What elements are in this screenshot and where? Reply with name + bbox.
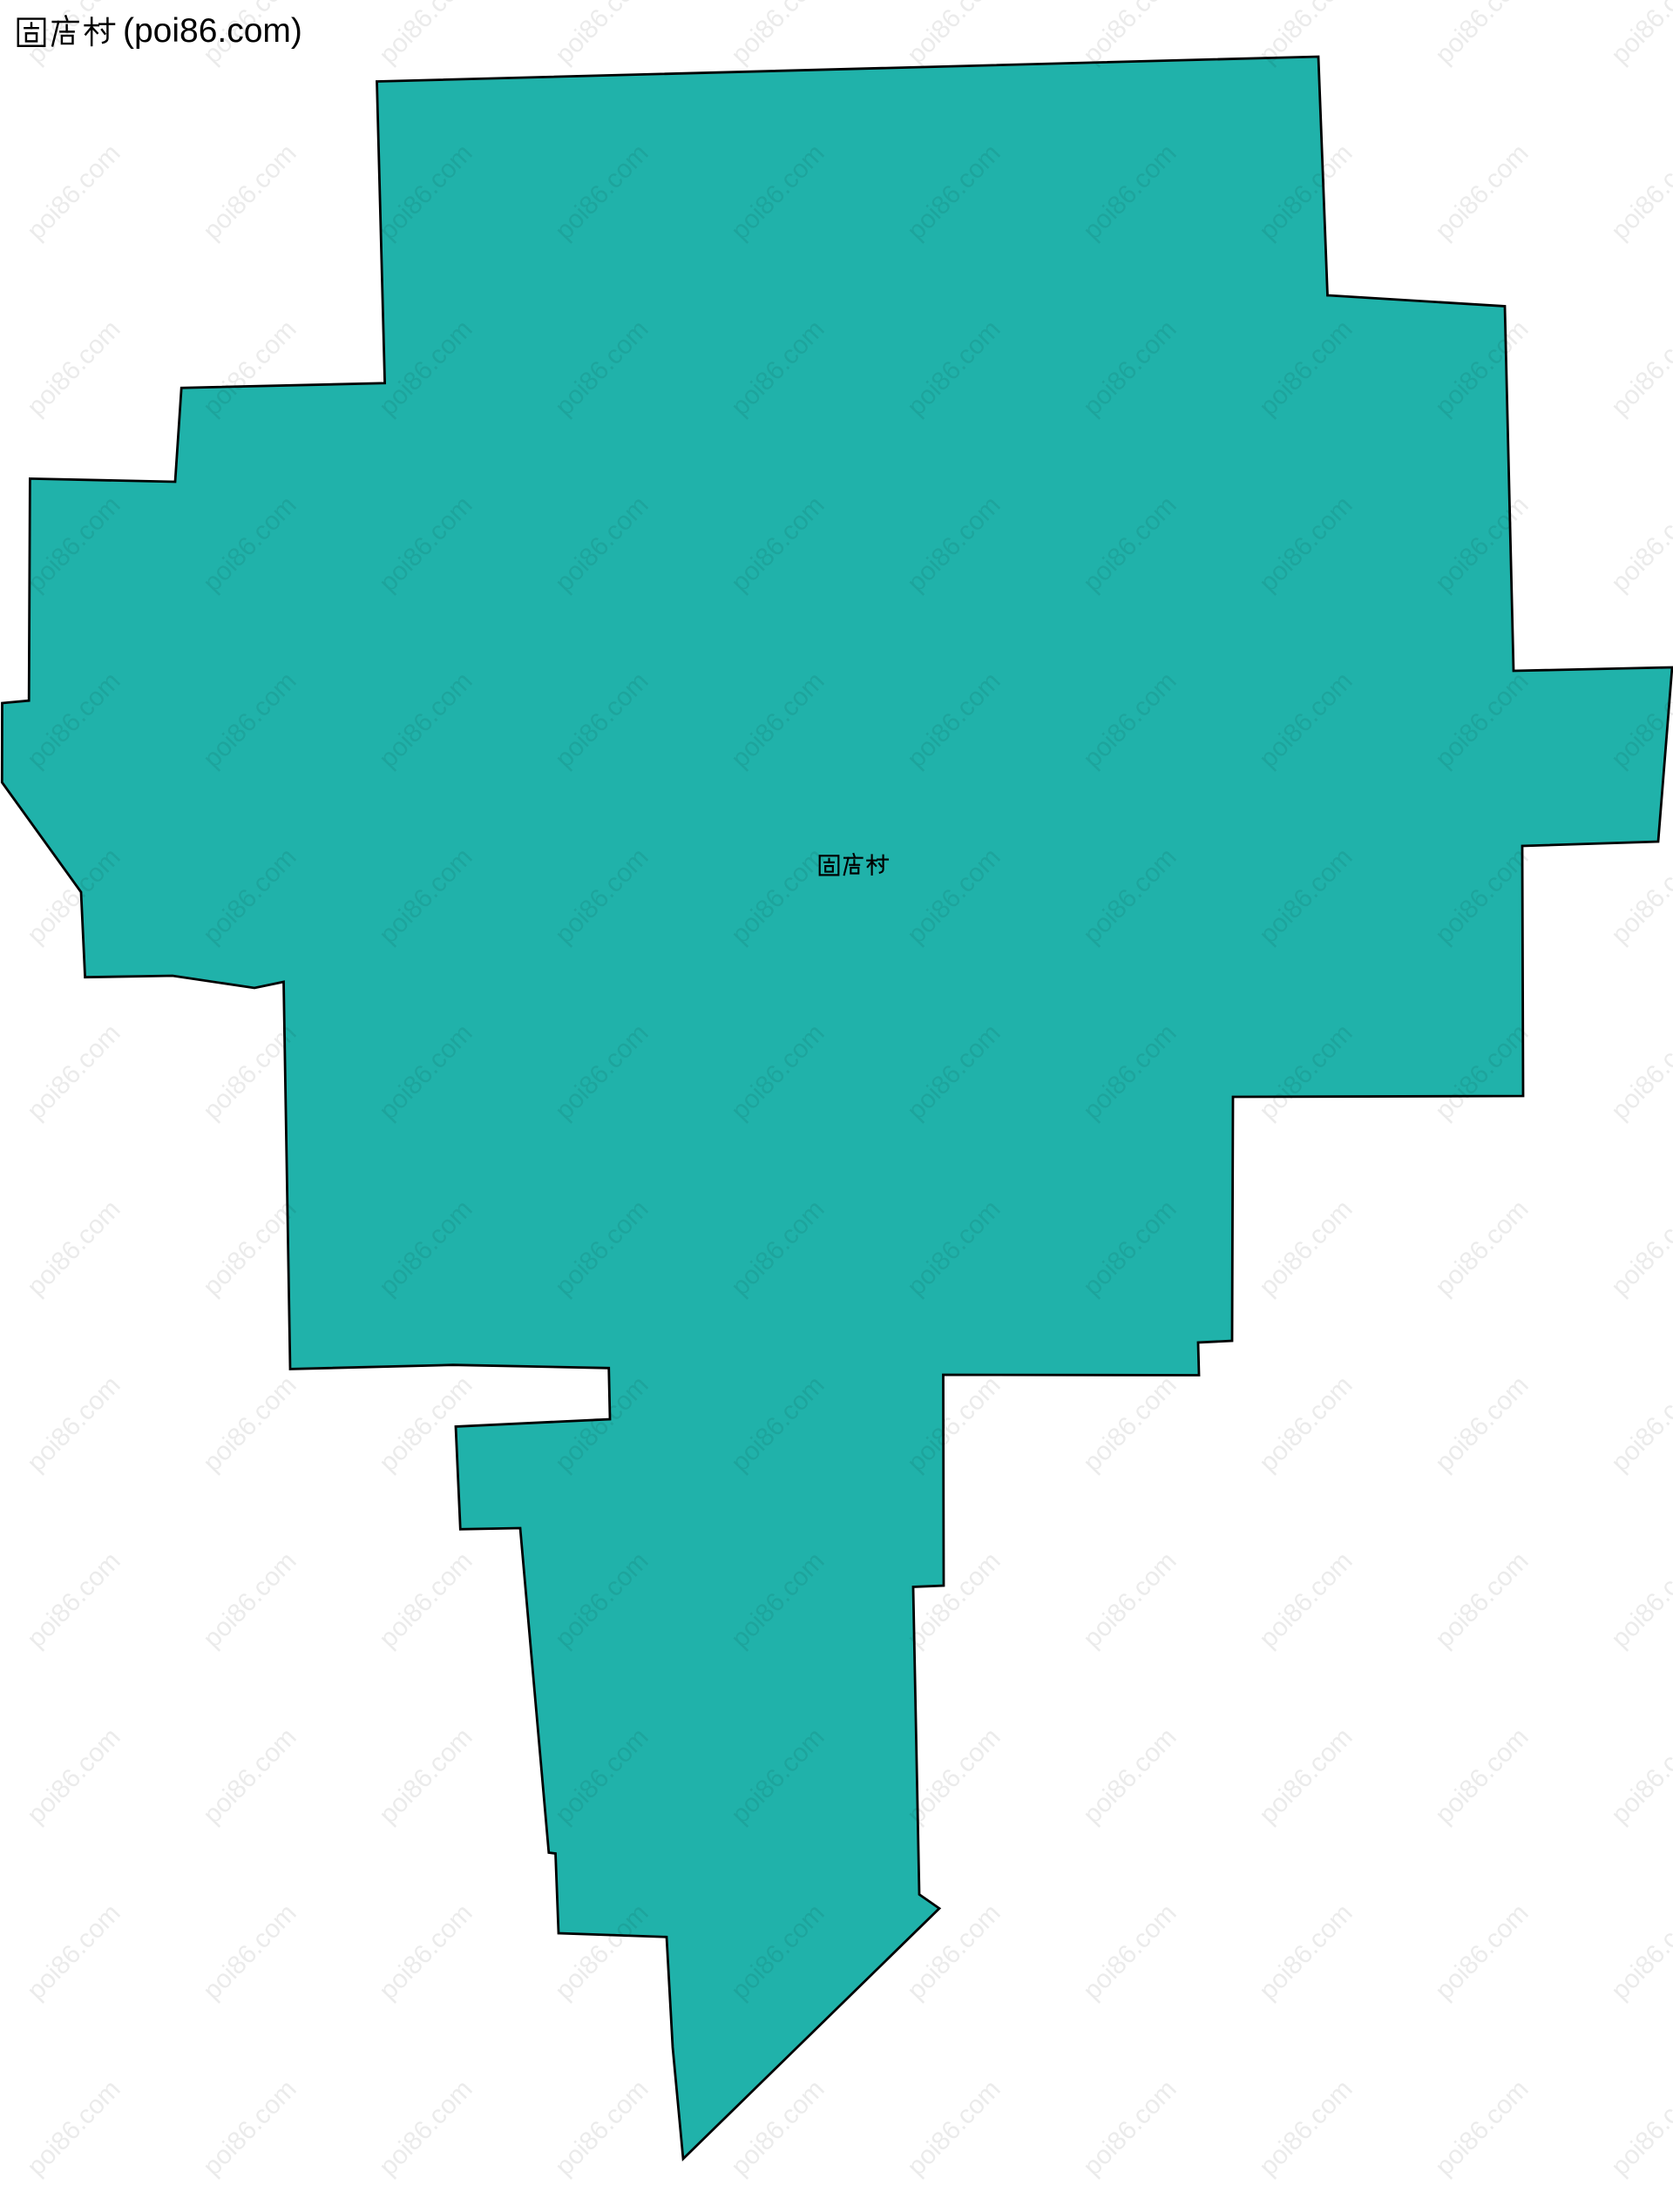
svg-text:(poi86.com): (poi86.com) bbox=[123, 12, 302, 50]
